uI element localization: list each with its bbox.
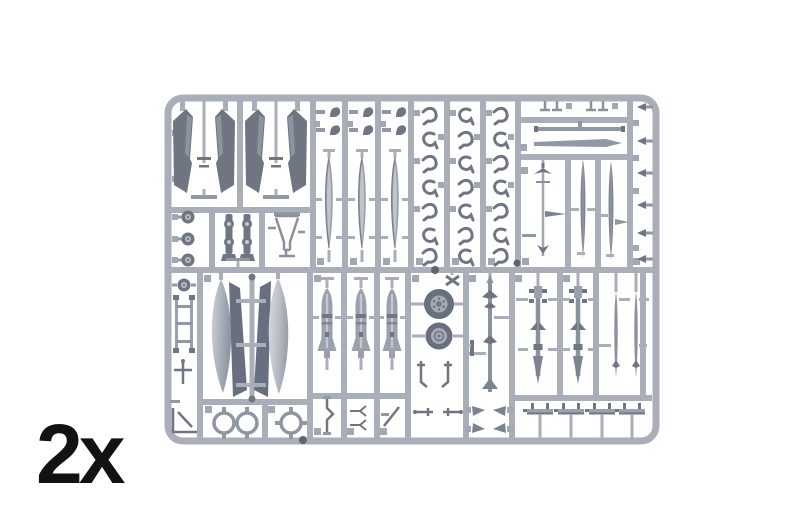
gear-strut-parts-group: [221, 214, 255, 270]
probe-parts-group: [521, 160, 566, 256]
mounting-ring-parts-group: [214, 407, 307, 439]
main-wheel-parts-group: [411, 270, 467, 416]
slim-tank-half-parts-group: [313, 107, 411, 262]
small-wheel-parts-group: [172, 211, 195, 267]
left-column-linkage-parts-group: [170, 279, 197, 433]
quantity-label: 2x: [36, 419, 121, 490]
product-photo: 2x: [0, 0, 800, 530]
small-fitting-parts-group: [323, 396, 399, 435]
intake-duct-part: [268, 212, 305, 256]
bomb-parts-group: [310, 277, 408, 370]
antenna-strip-parts-group: [534, 101, 625, 147]
sidewinder-missile-part: [465, 270, 513, 433]
edge-fitting-parts-group: [633, 103, 653, 263]
gear-door-hinge-parts-group: [414, 108, 514, 265]
pylon-parts-group: [523, 403, 645, 439]
